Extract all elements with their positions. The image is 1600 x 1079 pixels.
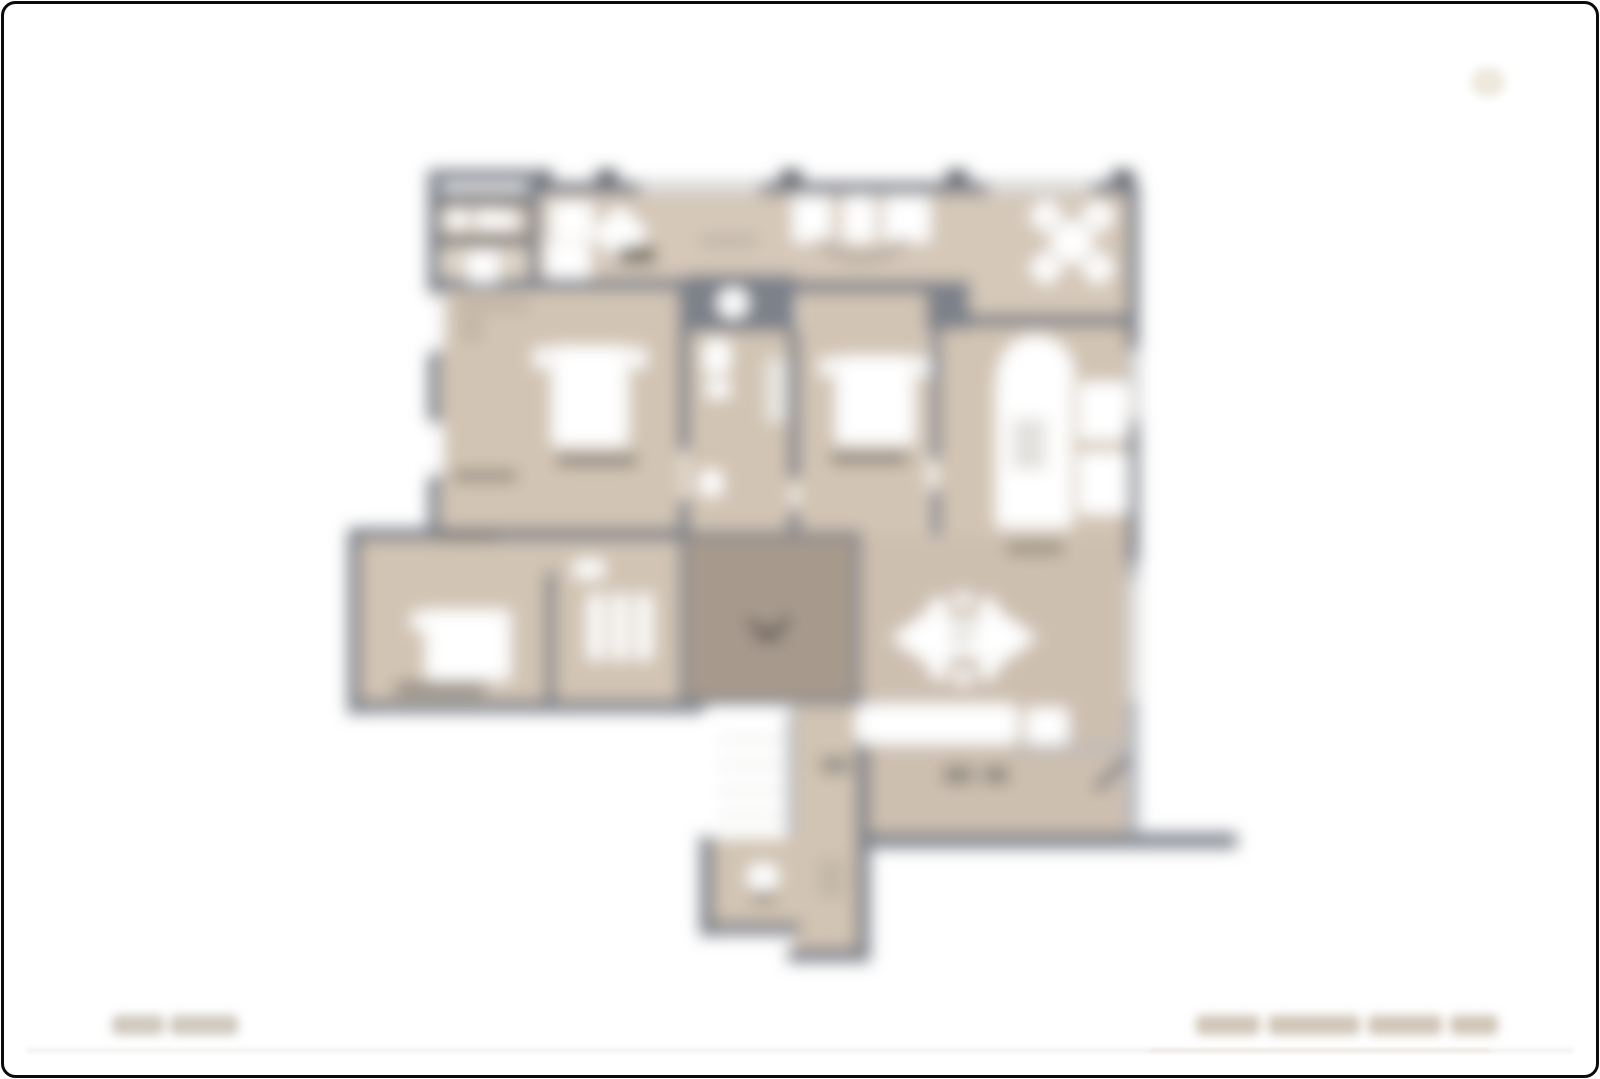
- window-gap: [1128, 580, 1137, 700]
- wall-pillar: [1112, 170, 1134, 184]
- kitchen-table: [618, 246, 656, 264]
- wall-bedroom1-divider: [678, 291, 690, 451]
- nightstand: [630, 348, 646, 368]
- stair-core: [682, 534, 858, 702]
- wall-wing-bottom: [348, 700, 704, 713]
- kitchen-appliance-icon: [551, 202, 593, 240]
- toilet-icon: [706, 380, 730, 398]
- corner-watermark: [1471, 67, 1505, 97]
- floor-living-lower: [856, 536, 1130, 836]
- wall-bedroom2-stub: [930, 490, 941, 536]
- wall-counter-edge: [1016, 746, 1130, 752]
- footer-right-text-blur: [1196, 1015, 1498, 1035]
- wall-bottom-right-long: [862, 833, 1237, 848]
- kitchen-appliance-icon: [843, 196, 875, 242]
- wall-balcony-hatch: [440, 194, 536, 206]
- wall-bedroom2-divider: [930, 330, 941, 460]
- wall-left-upper: [428, 170, 441, 538]
- label-smudge: [700, 236, 758, 246]
- window-gap: [640, 184, 760, 194]
- fixture: [700, 470, 722, 496]
- wall-bedroom2-top: [796, 280, 930, 293]
- bed-icon: [836, 356, 914, 444]
- balcony-rail: [476, 210, 500, 228]
- wall-corridor-left: [700, 836, 714, 936]
- wall-balcony-divider: [528, 170, 540, 290]
- nightstand: [534, 348, 550, 368]
- sink-icon: [704, 340, 730, 374]
- window-gap: [988, 184, 1092, 194]
- nightstand: [412, 612, 426, 630]
- shower-strip: [766, 358, 786, 422]
- label-smudge: [434, 532, 498, 542]
- floor-stairwell: [714, 712, 788, 838]
- label-smudge: [830, 452, 908, 464]
- bed-icon: [552, 346, 628, 446]
- wall-wing-top: [348, 528, 692, 541]
- wall-pillar: [946, 170, 968, 184]
- nightstand: [820, 358, 834, 376]
- wall-utility-bottom: [700, 922, 800, 935]
- floor-plan: [348, 170, 1237, 962]
- balcony-rail: [448, 210, 468, 228]
- wall-corridor-end: [788, 948, 870, 962]
- stool-icon: [983, 766, 1009, 784]
- floor-corridor-down: [794, 700, 858, 950]
- wall-closet-divider: [545, 572, 556, 704]
- wall-stair-rail: [786, 712, 795, 836]
- wall-pillar: [596, 170, 618, 184]
- toilet-icon: [748, 864, 778, 890]
- kitchen-appliance-icon: [546, 242, 590, 278]
- balcony-rail: [499, 211, 517, 229]
- kitchen-appliance-icon: [884, 196, 930, 242]
- fixture: [820, 756, 850, 774]
- window-gap: [426, 296, 443, 350]
- wall-wing-left: [348, 528, 361, 714]
- stool-icon: [943, 766, 973, 784]
- counter-icon: [1026, 708, 1068, 744]
- label-smudge: [394, 682, 486, 694]
- label-smudge: [1006, 540, 1064, 556]
- footer-left-text-blur: [112, 1015, 238, 1035]
- dresser: [458, 298, 530, 312]
- wall-living-top: [966, 314, 1130, 327]
- wall-balcony-top: [428, 170, 540, 183]
- floor-left-wing: [360, 540, 678, 704]
- window-gap: [1128, 350, 1137, 420]
- wall-bath-divider: [788, 330, 800, 480]
- fixture: [818, 858, 844, 898]
- label-smudge: [556, 454, 638, 466]
- wardrobe-smudge: [452, 470, 518, 482]
- footer-rule: [26, 1049, 1574, 1052]
- wall-block-right: [926, 280, 970, 330]
- column-circle: [718, 288, 748, 318]
- window-gap: [426, 424, 443, 474]
- kitchen-appliance-icon: [793, 196, 831, 242]
- page: [0, 0, 1600, 1079]
- nightstand: [916, 358, 930, 376]
- wall-balcony-hatch: [440, 236, 536, 246]
- balcony-object: [468, 252, 498, 282]
- wall-pillar: [780, 170, 802, 184]
- dresser: [462, 316, 482, 342]
- floor-plan-canvas: [0, 0, 1600, 1079]
- counter-icon: [856, 704, 1018, 744]
- bed-icon: [426, 610, 510, 680]
- fixture: [752, 892, 776, 902]
- core-slab: [682, 534, 858, 702]
